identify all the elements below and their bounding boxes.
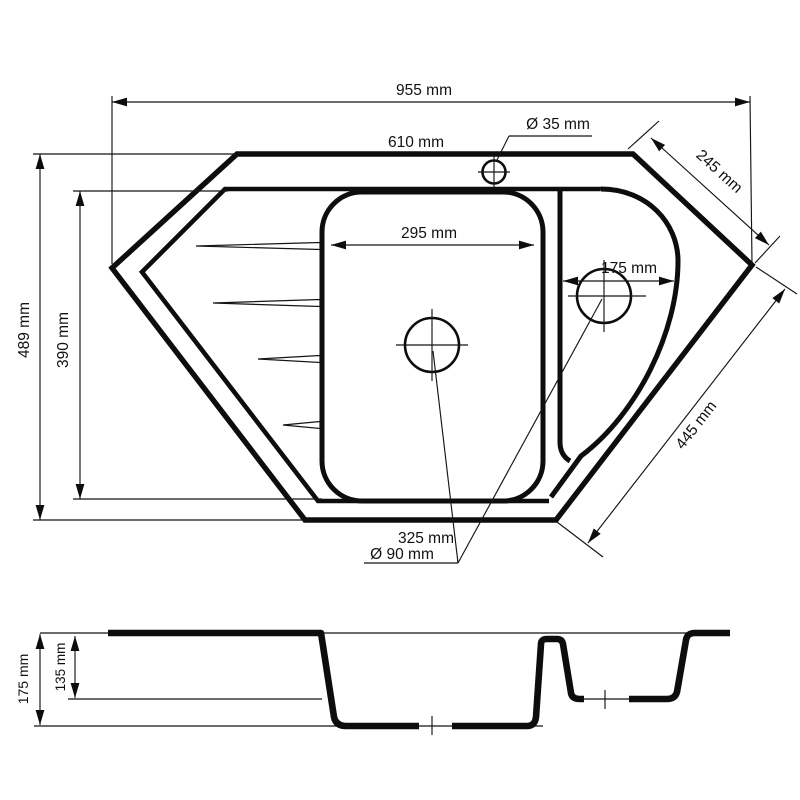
faucet-hole — [478, 156, 510, 188]
groove — [213, 300, 320, 307]
section-profile-right — [629, 633, 730, 699]
dim-total-depth: 175 mm — [15, 634, 40, 725]
top-edge-width-label: 610 mm — [388, 134, 444, 151]
faucet-hole-label: Ø 35 mm — [526, 116, 590, 133]
dim-small-bowl-depth: 135 mm — [53, 636, 75, 698]
overall-width-label: 955 mm — [396, 82, 452, 99]
top-right-edge-label: 245 mm — [693, 147, 746, 197]
groove — [283, 422, 320, 429]
bottom-edge-width-label: 325 mm — [398, 530, 454, 547]
total-depth-label: 175 mm — [15, 654, 31, 705]
main-bowl-width-label: 295 mm — [401, 225, 457, 242]
technical-drawing-sheet: 955 mm 610 mm Ø 35 mm 245 mm 489 mm — [0, 0, 800, 800]
overall-depth-label: 489 mm — [16, 302, 33, 358]
inner-depth-label: 390 mm — [55, 312, 72, 368]
section-profile-middle — [452, 639, 584, 726]
small-bowl-depth-label: 135 mm — [53, 643, 68, 692]
drain-diameter-label: Ø 90 mm — [370, 546, 434, 563]
top-view: 955 mm 610 mm Ø 35 mm 245 mm 489 mm — [16, 82, 797, 563]
groove — [196, 243, 320, 250]
sink-technical-drawing: 955 mm 610 mm Ø 35 mm 245 mm 489 mm — [0, 0, 800, 800]
section-view: 175 mm 135 mm — [15, 633, 730, 735]
groove — [258, 356, 320, 363]
bowl-divider — [560, 191, 570, 461]
small-bowl-width-label: 175 mm — [601, 260, 657, 277]
section-profile-left — [108, 633, 419, 726]
